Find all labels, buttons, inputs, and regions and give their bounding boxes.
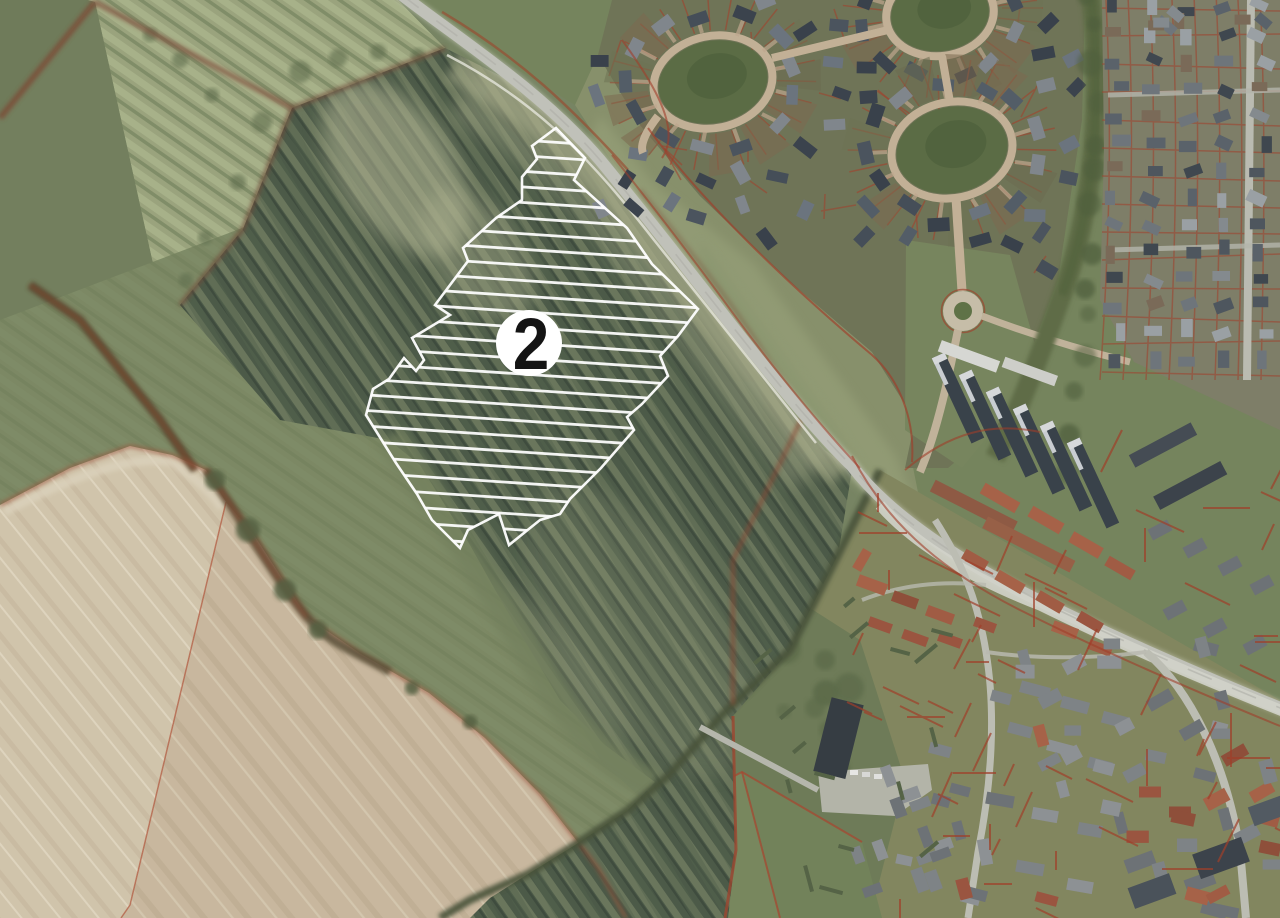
svg-text:2: 2 (513, 303, 550, 385)
